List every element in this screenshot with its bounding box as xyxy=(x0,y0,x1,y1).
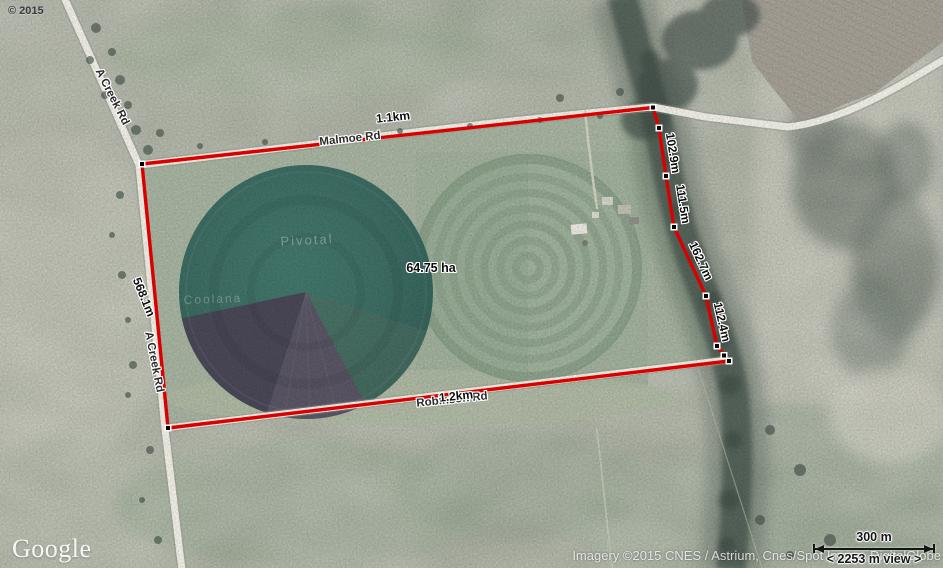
scale-arrow-right-icon xyxy=(924,545,933,553)
scale-bar-ruler xyxy=(813,544,935,553)
scale-bar: 300 m < 2253 m view > xyxy=(811,531,937,565)
google-logo: Google xyxy=(12,534,92,564)
scale-line xyxy=(814,548,934,550)
top-left-copyright: © 2015 xyxy=(8,5,44,17)
scale-distance-label: 300 m xyxy=(811,531,937,543)
imagery-grain xyxy=(0,0,943,568)
satellite-map-view[interactable]: © 2015 A Creek Rd 1.1km Malmoe Rd 568.1m… xyxy=(0,0,943,568)
scale-tick-right xyxy=(933,544,935,553)
satellite-imagery-canvas[interactable] xyxy=(0,0,943,568)
scale-view-width-label: < 2253 m view > xyxy=(811,553,937,565)
